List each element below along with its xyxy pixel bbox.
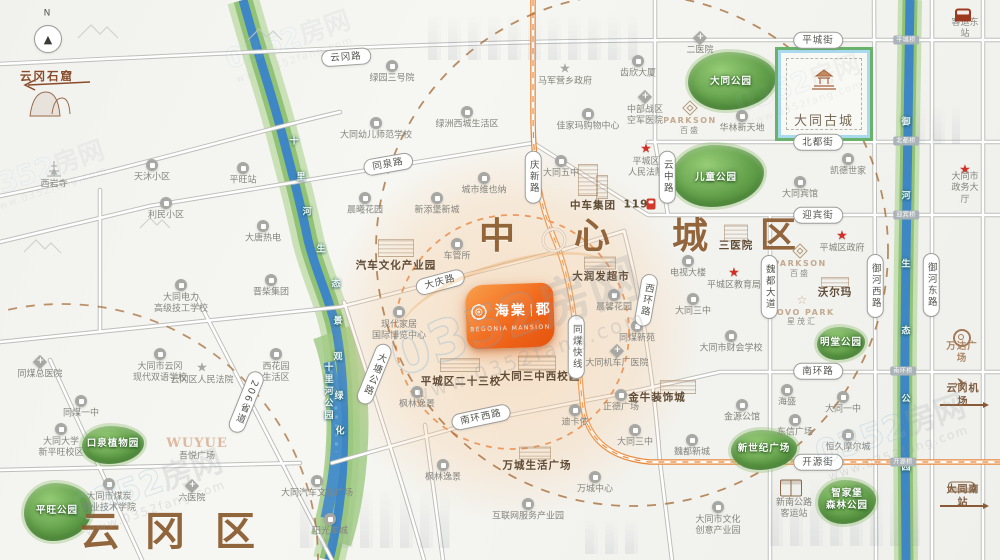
circle-icon xyxy=(386,60,398,72)
underline-arrow xyxy=(940,404,986,406)
grottoes-sketch xyxy=(25,80,90,116)
property-name: 海棠郡 xyxy=(495,303,552,319)
poi-label: 三医院 xyxy=(719,239,754,252)
circle-icon xyxy=(311,475,323,487)
poi-label: 同煤一中 xyxy=(63,408,99,419)
poi-label: 晨馨花园 xyxy=(596,302,632,313)
circle-icon xyxy=(522,498,534,510)
poi-label: 大润发超市 xyxy=(572,270,630,283)
poi-label: 西花园 生活区 xyxy=(262,362,289,385)
poi-label: 东信广场 xyxy=(777,427,813,438)
circle-icon xyxy=(789,414,801,426)
poi-label: 大同市文化 创意产业园 xyxy=(695,515,740,538)
road-label: 迎宾街 xyxy=(793,207,843,224)
circle-icon xyxy=(842,429,854,441)
poi-label: 大同幼儿师范学校 xyxy=(340,130,412,141)
poi-label: 大同五中 xyxy=(543,168,579,179)
circle-icon xyxy=(687,293,699,305)
poi-label: 魏都新城 xyxy=(674,447,710,458)
pagoda-icon: ▲ xyxy=(51,168,58,177)
building-sketch xyxy=(378,239,414,257)
road-label: 北都街 xyxy=(793,134,843,151)
circle-icon xyxy=(146,159,158,171)
poi-label: 城市维也纳 xyxy=(461,185,506,196)
star-red-icon: ★ xyxy=(640,143,652,156)
bridge-label: 迎宾桥 xyxy=(893,211,919,220)
wanda-logo-icon xyxy=(953,329,971,347)
poi-label: 金牛装饰城 xyxy=(628,391,686,404)
poi-label: 新南公路 客运站 xyxy=(776,498,812,521)
poi-label: 大同市 政务大厅 xyxy=(948,172,983,206)
poi-label: 大同汽车文化广场 xyxy=(281,488,353,499)
building-sketch xyxy=(519,447,551,460)
bus-icon xyxy=(955,9,971,22)
poi-label: 绿洲西城生活区 xyxy=(435,119,498,130)
park-label: 智家堡 森林公园 xyxy=(826,488,868,512)
poi-label: WUYUE xyxy=(166,436,227,452)
poi-label: 大同三中 xyxy=(617,437,653,448)
road-label: 同煤快线 xyxy=(568,315,585,379)
circle-icon xyxy=(682,255,694,267)
river-name-char: 观 xyxy=(333,354,342,363)
poi-label: 百盛 xyxy=(790,269,810,279)
poi-label: 平城区政府 xyxy=(819,243,864,254)
river-name-char: 生 xyxy=(901,261,910,270)
river-name-char: 河 xyxy=(302,209,311,218)
circle-icon xyxy=(265,274,277,286)
poi-label: 现代家居 国际博览中心 xyxy=(372,320,426,343)
poi-label: 万城中心 xyxy=(577,484,613,495)
poi-label: 佳家玛购物中心 xyxy=(556,121,619,132)
poi-label: 新添堡新城 xyxy=(414,205,459,216)
poi-label: 马军营乡政府 xyxy=(538,76,592,87)
building-sketch xyxy=(440,358,480,372)
poi-label: 百盛 xyxy=(680,126,700,136)
ancient-city-label: 大同古城 xyxy=(794,115,854,128)
circle-icon xyxy=(842,153,854,165)
poi-label: 车管所 xyxy=(443,251,470,262)
poi-label: 恒久摩尔城 xyxy=(825,442,870,453)
train-station-icon xyxy=(948,482,976,493)
star-gray-icon: ★ xyxy=(559,63,571,76)
district-name-char: 心 xyxy=(574,218,610,254)
compass-north-label: N xyxy=(44,10,51,19)
building-sketch xyxy=(518,356,556,371)
road-label: 云中路 xyxy=(659,151,676,204)
star-gray-icon: ★ xyxy=(196,362,208,375)
circle-icon xyxy=(370,117,382,129)
property-subtitle: BEGONIA MANSION xyxy=(470,325,551,334)
river-name-char: 河 xyxy=(901,193,910,202)
park-label: 新世纪广场 xyxy=(738,443,791,455)
poi-label: 凯德世家 xyxy=(830,166,866,177)
poi-label: 大同市财会学校 xyxy=(699,343,762,354)
poi-label: 星茂汇 xyxy=(787,317,817,327)
river-name-char: 十 xyxy=(289,138,298,147)
poi-label: 天沐小区 xyxy=(134,172,170,183)
diamond-icon xyxy=(693,31,707,45)
district-name-char: 区 xyxy=(215,512,255,552)
star-red-icon: ★ xyxy=(836,230,848,243)
circle-icon xyxy=(781,384,793,396)
poi-label: 枫林逸景 xyxy=(425,472,461,483)
circle-icon xyxy=(608,289,620,301)
poi-label: 大同宾馆 xyxy=(782,189,818,200)
circle-icon xyxy=(555,155,567,167)
building-sketch xyxy=(584,257,616,270)
poi-label: 晨曦花园 xyxy=(347,205,383,216)
circle-icon xyxy=(451,238,463,250)
poi-label: 互联网服务产业园 xyxy=(492,511,564,522)
poi-label: PARKSON xyxy=(773,259,826,269)
road-label: 庆新路 xyxy=(525,151,542,204)
poi-label: 中部战区 空军医院 xyxy=(627,105,663,128)
compass-icon: ▲ xyxy=(34,25,62,53)
circle-icon xyxy=(736,110,748,122)
poi-label: 晋柴集团 xyxy=(253,287,289,298)
road-label: 御河西路 xyxy=(867,254,884,318)
circle-icon xyxy=(270,348,282,360)
bus-station-sketch xyxy=(780,480,802,497)
poi-label: 汽车文化产业园 xyxy=(356,259,437,272)
circle-icon xyxy=(175,279,187,291)
circle-icon xyxy=(837,391,849,403)
poi-label: PARKSON xyxy=(663,116,716,126)
poi-label: 同煤总医院 xyxy=(17,369,62,380)
diamond-icon xyxy=(638,90,652,104)
river-name-char: 绿 xyxy=(334,393,343,402)
river-name-char: 态 xyxy=(901,328,910,337)
poi-label: 大同一中 xyxy=(825,404,861,415)
bridge-label: 北都桥 xyxy=(893,137,919,146)
building-sketch xyxy=(578,164,598,196)
bridge-label: 开源桥 xyxy=(890,458,916,467)
poi-label: 平城区教育局 xyxy=(707,280,761,291)
circle-icon xyxy=(794,176,806,188)
district-name-char: 城 xyxy=(672,218,708,254)
poi-label: 大同大学 新平旺校区 xyxy=(38,437,83,460)
park-label: 儿童公园 xyxy=(695,172,737,184)
poi-label: 大同市煤炭 职业技术学院 xyxy=(82,492,136,515)
circle-icon xyxy=(712,501,724,513)
pagoda-icon xyxy=(809,68,839,90)
circle-icon xyxy=(629,424,641,436)
circle-icon xyxy=(725,330,737,342)
circle-icon xyxy=(478,172,490,184)
diamond-icon xyxy=(610,344,624,358)
poi-label: 云冈区人民法院 xyxy=(170,375,233,386)
poi-label: 齿欣大厦 xyxy=(620,68,656,79)
district-name-char: 区 xyxy=(760,217,796,253)
road-label: 开源街 xyxy=(793,454,843,471)
poi-label: 大同机车厂医院 xyxy=(585,358,648,369)
property-logo-medallion-icon xyxy=(467,301,490,324)
building-sketch xyxy=(596,175,608,199)
bridge-label: 南环桥 xyxy=(890,367,916,376)
road-label: 云冈路 xyxy=(321,47,372,67)
circle-icon xyxy=(569,404,581,416)
poi-label: 阳光车城 xyxy=(312,526,348,537)
circle-icon xyxy=(461,106,473,118)
location-map[interactable]: ▲ N 大同古城 海棠郡 BEGONIA MANSION 大同公园儿童公园明堂公… xyxy=(0,0,1000,560)
diamond-icon xyxy=(33,355,47,369)
river-name-char: 里 xyxy=(296,174,305,183)
park-label: 大同公园 xyxy=(710,76,752,88)
fire-station-icon xyxy=(647,199,656,210)
park-label: 明堂公园 xyxy=(820,337,862,349)
star-o-icon: ☆ xyxy=(797,294,808,306)
poi-label: 迪卡侬 xyxy=(561,417,588,428)
circle-icon xyxy=(582,108,594,120)
poi-label: 平城区二十三校 xyxy=(421,375,502,388)
poi-label: 云冈石窟 xyxy=(20,69,74,83)
river-name-char: 态 xyxy=(331,281,340,290)
circle-icon xyxy=(615,389,627,401)
bridge-label: 平城桥 xyxy=(893,36,919,45)
district-name-char: 云 xyxy=(80,512,120,552)
road-label: 南环路 xyxy=(793,363,843,380)
circle-icon xyxy=(55,423,67,435)
poi-label: 吾悦广场 xyxy=(179,451,215,462)
poi-label: 华林新天地 xyxy=(719,123,764,134)
circle-icon xyxy=(393,306,405,318)
circle-icon xyxy=(154,348,166,360)
ancient-city-area: 大同古城 xyxy=(778,50,870,138)
poi-label: 同煤新苑 xyxy=(619,333,655,344)
river-name-char: 化 xyxy=(335,428,344,437)
circle-icon xyxy=(632,55,644,67)
poi-label: 利民小区 xyxy=(148,210,184,221)
city-skyline-sketch xyxy=(428,14,638,60)
circle-icon xyxy=(589,471,601,483)
circle-icon xyxy=(686,434,698,446)
river-yuhe xyxy=(905,0,910,560)
property-marker[interactable]: 海棠郡 BEGONIA MANSION xyxy=(465,282,555,349)
poi-label: 绿园三号院 xyxy=(369,73,414,84)
poi-label: 大同三中 xyxy=(675,306,711,317)
poi-label: 平旺站 xyxy=(229,175,256,186)
circle-icon xyxy=(437,459,449,471)
poi-label: 大唐热电 xyxy=(245,233,281,244)
poi-label: 枫林逸景 xyxy=(399,399,435,410)
river-name-char: 御 xyxy=(901,119,910,128)
park-label: 平旺公园 xyxy=(36,505,78,517)
circle-icon xyxy=(103,478,115,490)
poi-label: 海盛 xyxy=(778,397,796,408)
circle-icon xyxy=(75,395,87,407)
diamond-icon xyxy=(185,479,199,493)
park-label: 口泉植物园 xyxy=(87,438,140,450)
road-label: 魏都大道 xyxy=(761,255,778,319)
circle-icon xyxy=(257,220,269,232)
poi-label: 电视大楼 xyxy=(670,268,706,279)
circle-icon xyxy=(237,162,249,174)
circle-icon xyxy=(431,192,443,204)
poi-label: 大同电力 高级技工学校 xyxy=(154,293,208,316)
district-name-char: 中 xyxy=(479,218,515,254)
river-park-label: 十里河公园 xyxy=(323,362,332,422)
road-label: 御河东路 xyxy=(923,253,940,317)
underline-arrow xyxy=(940,505,986,507)
circle-icon xyxy=(359,192,371,204)
poi-label: 中车集团 xyxy=(570,199,616,212)
poi-label: 沃尔玛 xyxy=(818,286,853,299)
city-skyline-sketch xyxy=(912,104,960,144)
poi-label: 二医院 xyxy=(686,45,713,56)
district-name-char: 冈 xyxy=(145,512,185,552)
poi-label: 119 xyxy=(624,198,649,211)
circle-icon xyxy=(160,197,172,209)
city-skyline-sketch xyxy=(585,518,645,554)
poi-label: 万城生活广场 xyxy=(503,459,572,472)
poi-label: 西岩寺 xyxy=(40,179,67,190)
river-name-char: 公 xyxy=(901,396,910,405)
road-label: 平城街 xyxy=(793,32,843,49)
poi-label: 六医院 xyxy=(178,493,205,504)
circle-icon xyxy=(736,399,748,411)
river-name-char: 生 xyxy=(316,246,325,255)
river-name-char: 景 xyxy=(333,318,342,327)
star-red-icon: ★ xyxy=(728,267,740,280)
poi-label: 金源公馆 xyxy=(724,412,760,423)
circle-icon xyxy=(324,513,336,525)
